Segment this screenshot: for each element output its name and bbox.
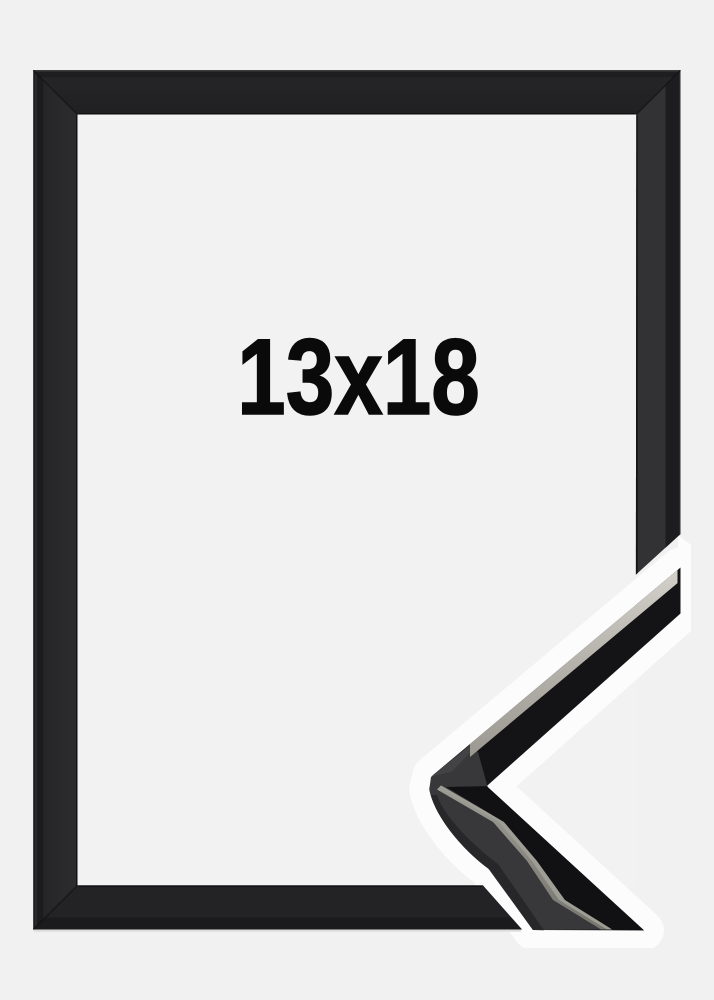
svg-text:13x18: 13x18 <box>237 316 480 437</box>
